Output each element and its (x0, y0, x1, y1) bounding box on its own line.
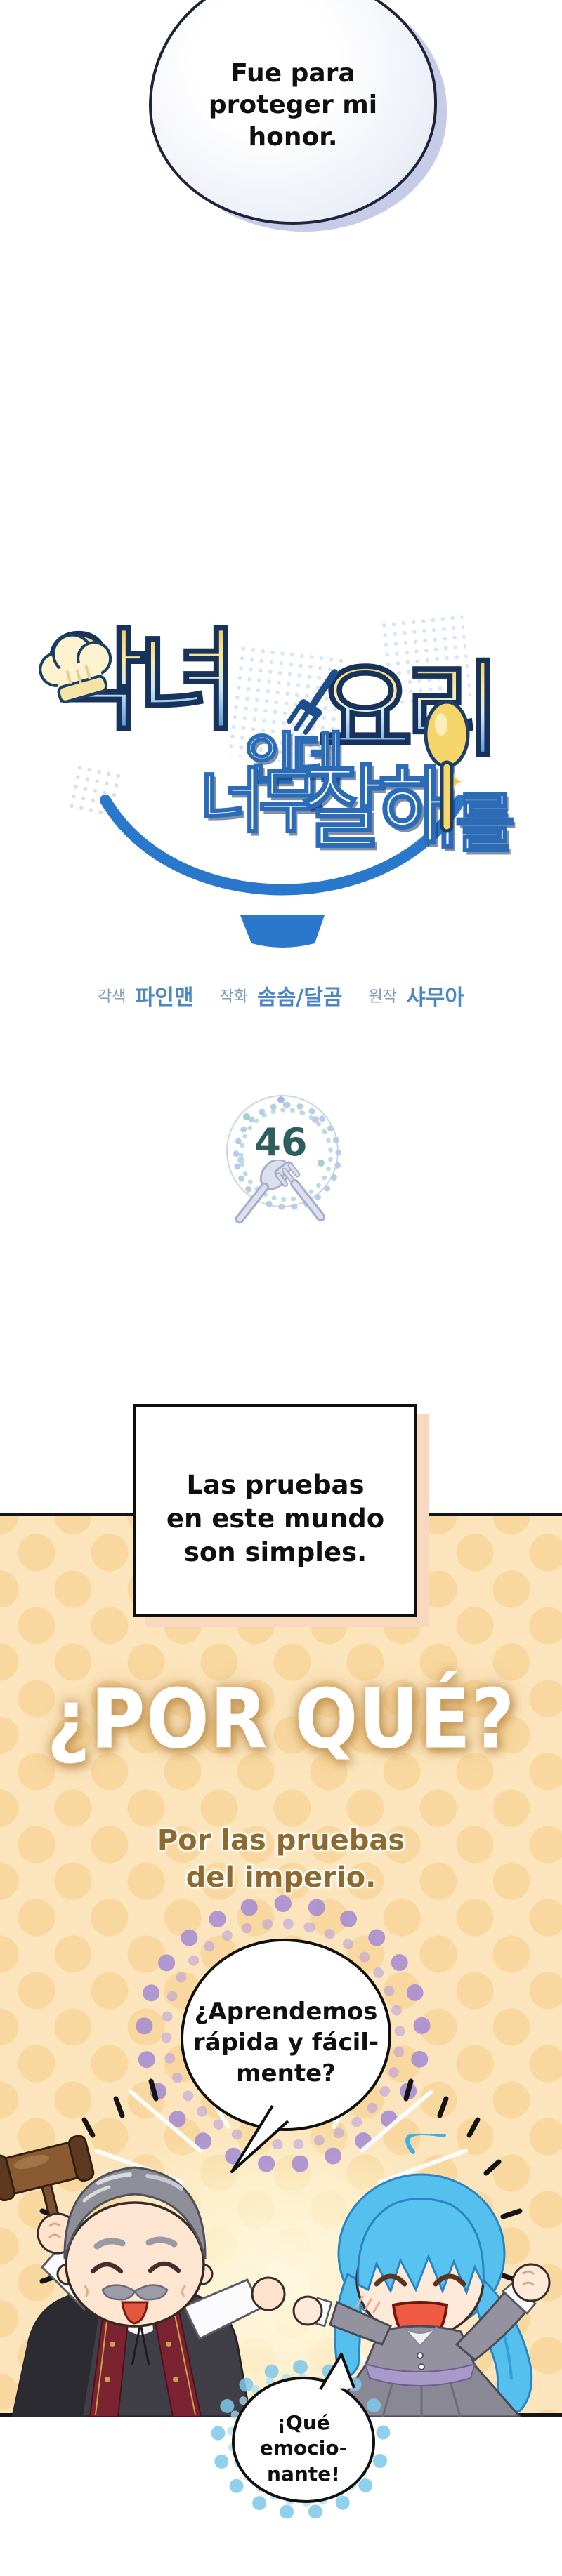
caption-line: Por las pruebas (0, 1822, 562, 1859)
credit-role: 원작 (369, 988, 397, 1006)
question-line: ¿Aprendemos (183, 1996, 388, 2027)
narration-line: Las pruebas (136, 1468, 414, 1502)
wreath-accent (277, 1096, 285, 1103)
wreath-accent (243, 1113, 250, 1120)
narration-line: son simples. (136, 1536, 414, 1569)
excited-bubble-tail (315, 2351, 358, 2392)
credit-adaptation: 각색 파인맨 (98, 980, 193, 1011)
credit-name: 파인맨 (136, 985, 194, 1010)
top-speech-line: honor. (152, 121, 434, 153)
excited-speech-text: ¡Qué emocio- nante! (235, 2379, 372, 2487)
excited-line: ¡Qué emocio- (235, 2410, 372, 2462)
episode-number: 46 (226, 1120, 336, 1164)
fork-icon (280, 658, 347, 750)
credit-role: 각색 (98, 988, 126, 1006)
credit-name: 솜솜/달곰 (257, 985, 342, 1010)
credit-art: 작화 솜솜/달곰 (220, 980, 343, 1011)
excited-line: nante! (235, 2462, 372, 2487)
credit-role: 작화 (220, 988, 248, 1006)
chef-hat-icon (31, 630, 122, 711)
title-word: 너무 (200, 766, 318, 837)
top-speech-bubble: Fue para proteger mi honor. (149, 0, 437, 225)
excited-speech-bubble: ¡Qué emocio- nante! (232, 2377, 375, 2503)
credit-original: 원작 샤무아 (369, 980, 464, 1011)
caption-line: del imperio. (0, 1859, 562, 1897)
credits-line: 각색 파인맨 작화 솜솜/달곰 원작 샤무아 (0, 980, 562, 1011)
narration-text: Las pruebas en este mundo son simples. (136, 1407, 414, 1569)
credit-name: 샤무아 (406, 985, 464, 1010)
question-bubble-tail (223, 2100, 301, 2177)
caption-text: Por las pruebas del imperio. (0, 1822, 562, 1897)
question-line: rápida y fácil- (183, 2027, 388, 2058)
top-speech-line: proteger mi (152, 89, 434, 121)
narration-line: en este mundo (136, 1502, 414, 1536)
question-speech-text: ¿Aprendemos rápida y fácil- mente? (183, 1941, 388, 2090)
top-speech-text: Fue para proteger mi honor. (152, 0, 434, 153)
webtoon-page: Fue para proteger mi honor. 악녀 인데 요리 를 너… (0, 0, 562, 2576)
narration-box: Las pruebas en este mundo son simples. (133, 1404, 417, 1617)
crossed-spoon-fork-icon (223, 1160, 339, 1227)
spoon-icon (420, 698, 473, 835)
question-line: mente? (183, 2058, 388, 2089)
shout-text: ¿POR QUÉ? (0, 1672, 562, 1767)
top-speech-line: Fue para (152, 58, 434, 89)
